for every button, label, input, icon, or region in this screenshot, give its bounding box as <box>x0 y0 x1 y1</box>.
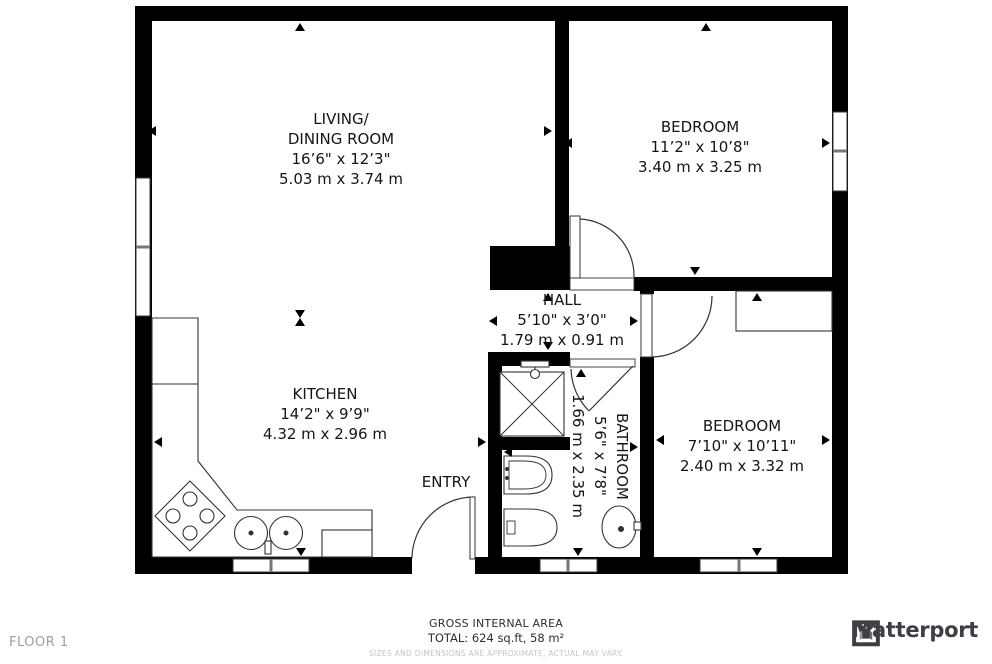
arrow-up-icon <box>576 369 586 377</box>
room-name: BEDROOM <box>680 416 804 436</box>
room-label-bedroom1: BEDROOM 11’2" x 10’8" 3.40 m x 3.25 m <box>638 117 762 177</box>
room-dim-imperial: 5’10" x 3’0" <box>500 310 624 330</box>
arrow-left-icon <box>656 435 664 445</box>
wall-living-bedroom1 <box>555 6 569 251</box>
room-dim-imperial: 7’10" x 10’11" <box>680 436 804 456</box>
room-label-hall: HALL 5’10" x 3’0" 1.79 m x 0.91 m <box>500 290 624 350</box>
room-dim-metric: 4.32 m x 2.96 m <box>263 424 387 444</box>
entry-opening <box>412 556 475 575</box>
room-name: KITCHEN <box>263 384 387 404</box>
stove-burner <box>183 492 197 506</box>
wall-outer-right <box>832 6 848 574</box>
room-label-kitchen: KITCHEN 14’2" x 9’9" 4.32 m x 2.96 m <box>263 384 387 444</box>
shower-head-icon <box>521 361 549 367</box>
matterport-brand: Matterport <box>851 618 978 642</box>
bathroom-door-threshold <box>570 359 635 367</box>
bidet-tap <box>506 477 509 480</box>
room-dim-metric: 1.79 m x 0.91 m <box>500 330 624 350</box>
room-dim-imperial: 11’2" x 10’8" <box>638 137 762 157</box>
gross-area-title: GROSS INTERNAL AREA <box>0 617 992 630</box>
floorplan-page: LIVING/ DINING ROOM 16’6" x 12’3" 5.03 m… <box>0 0 992 664</box>
arrow-right-icon <box>544 126 552 136</box>
room-name: BEDROOM <box>638 117 762 137</box>
matterport-logo-icon <box>851 618 881 648</box>
walls <box>135 6 848 574</box>
bedroom1-door-arc <box>580 219 634 277</box>
wall-outer-top <box>135 6 848 21</box>
room-name: DINING ROOM <box>279 129 403 149</box>
room-dim-metric: 2.40 m x 3.32 m <box>680 456 804 476</box>
wall-hall-block <box>490 246 570 290</box>
sink-tap <box>634 522 641 530</box>
arrow-left-icon <box>489 316 497 326</box>
bidet-tap <box>506 468 509 471</box>
room-name: HALL <box>500 290 624 310</box>
area-summary: GROSS INTERNAL AREA TOTAL: 624 sq.ft, 58… <box>0 617 992 658</box>
room-dim-metric: 5.03 m x 3.74 m <box>279 169 403 189</box>
bedroom2-door-leaf <box>641 294 652 357</box>
bedroom1-door-threshold <box>570 278 634 290</box>
room-dim-metric: 1.66 m x 2.35 m <box>567 394 589 518</box>
stove-burner <box>200 509 214 523</box>
arrow-up-icon <box>701 23 711 31</box>
kitchen-tap <box>265 541 271 554</box>
entry-door-leaf <box>470 497 475 559</box>
bedroom2-door-arc <box>652 296 712 357</box>
arrow-down-icon <box>690 267 700 275</box>
arrow-right-icon <box>822 138 830 148</box>
room-dim-metric: 3.40 m x 3.25 m <box>638 157 762 177</box>
gross-area-total: TOTAL: 624 sq.ft, 58 m² <box>0 631 992 645</box>
area-disclaimer: SIZES AND DIMENSIONS ARE APPROXIMATE, AC… <box>0 649 992 658</box>
arrow-down-icon <box>752 548 762 556</box>
room-dim-imperial: 16’6" x 12’3" <box>279 149 403 169</box>
sink-drain <box>284 531 288 535</box>
room-label-bathroom: BATHROOM 5’6" x 7’8" 1.66 m x 2.35 m <box>567 394 633 518</box>
stove-burner <box>183 526 197 540</box>
entry-door-arc <box>412 497 474 558</box>
wall-hall-bedroom2-upper <box>640 277 654 294</box>
floorplan-graphics <box>0 0 992 664</box>
bidet-inner <box>509 461 546 489</box>
kitchen-appliance <box>322 530 372 557</box>
room-name: BATHROOM <box>611 394 633 518</box>
closet <box>736 291 832 331</box>
wall-shower-south <box>488 437 570 450</box>
entry-label: ENTRY <box>422 473 471 491</box>
wall-bedroom1-south <box>634 277 832 291</box>
arrow-right-icon <box>630 316 638 326</box>
arrow-up-icon <box>295 23 305 31</box>
arrow-right-icon <box>478 437 486 447</box>
wall-bath-bedroom2-lower <box>640 357 654 558</box>
arrow-right-icon <box>822 435 830 445</box>
arrow-up-icon <box>295 318 305 326</box>
room-label-bedroom2: BEDROOM 7’10" x 10’11" 2.40 m x 3.32 m <box>680 416 804 476</box>
stove-burner <box>166 509 180 523</box>
shower-head-icon <box>531 370 540 379</box>
room-name: LIVING/ <box>279 109 403 129</box>
sink-drain <box>619 527 624 532</box>
toilet-cistern <box>507 521 515 534</box>
room-label-living: LIVING/ DINING ROOM 16’6" x 12’3" 5.03 m… <box>279 109 403 189</box>
room-dim-imperial: 14’2" x 9’9" <box>263 404 387 424</box>
arrow-down-icon <box>295 310 305 318</box>
bedroom1-door-leaf <box>570 216 580 278</box>
arrow-down-icon <box>573 548 583 556</box>
room-dim-imperial: 5’6" x 7’8" <box>589 394 611 518</box>
sink-drain <box>249 531 253 535</box>
